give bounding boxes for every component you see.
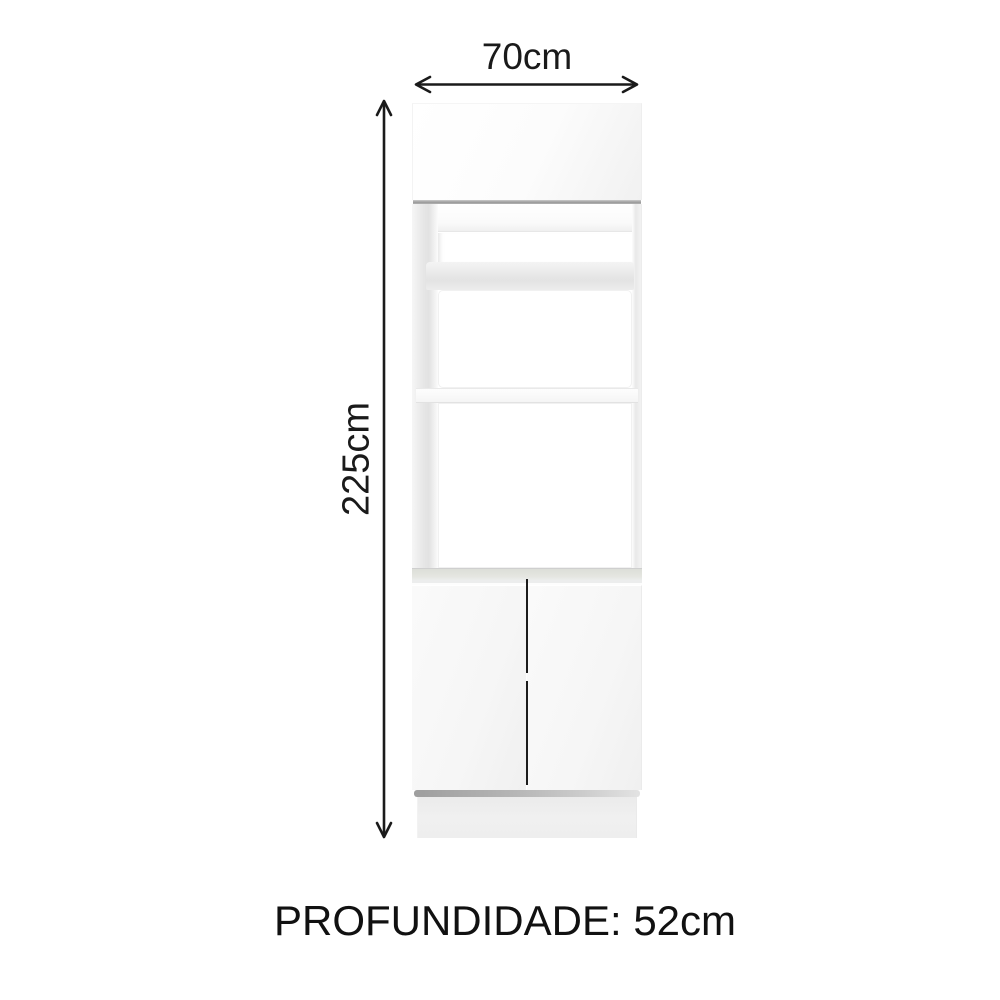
open-compartment-2 (438, 403, 632, 568)
niche-valance-panel (438, 204, 632, 232)
depth-dimension-label: PROFUNDIDADE: 52cm (0, 897, 1000, 945)
cabinet-right-side-panel (632, 204, 642, 568)
width-arrow-icon (416, 77, 637, 92)
plinth-shadow (414, 790, 640, 797)
product-dimension-diagram: 70cm 225cm PROFUNDIDADE: 52cm (0, 0, 1000, 1000)
width-dimension-label: 70cm (412, 36, 642, 78)
door-gap-line-upper (526, 579, 528, 673)
cabinet-left-side-panel (412, 204, 438, 568)
open-compartment-1 (438, 290, 632, 388)
shelf-divider (416, 388, 638, 403)
cabinet-illustration (412, 103, 642, 838)
cabinet-bottom-doors (412, 585, 642, 790)
height-dimension-label: 225cm (336, 402, 379, 516)
cabinet-top-door (412, 103, 642, 200)
shelf-front-edge (426, 262, 634, 290)
bottom-door-right (527, 585, 642, 790)
door-gap-line-lower (526, 681, 528, 785)
niche-open-slot (438, 233, 632, 262)
bottom-door-left (412, 585, 527, 790)
cabinet-plinth (417, 797, 637, 838)
cabinet-open-section (412, 204, 642, 568)
height-arrow-icon (377, 101, 391, 837)
